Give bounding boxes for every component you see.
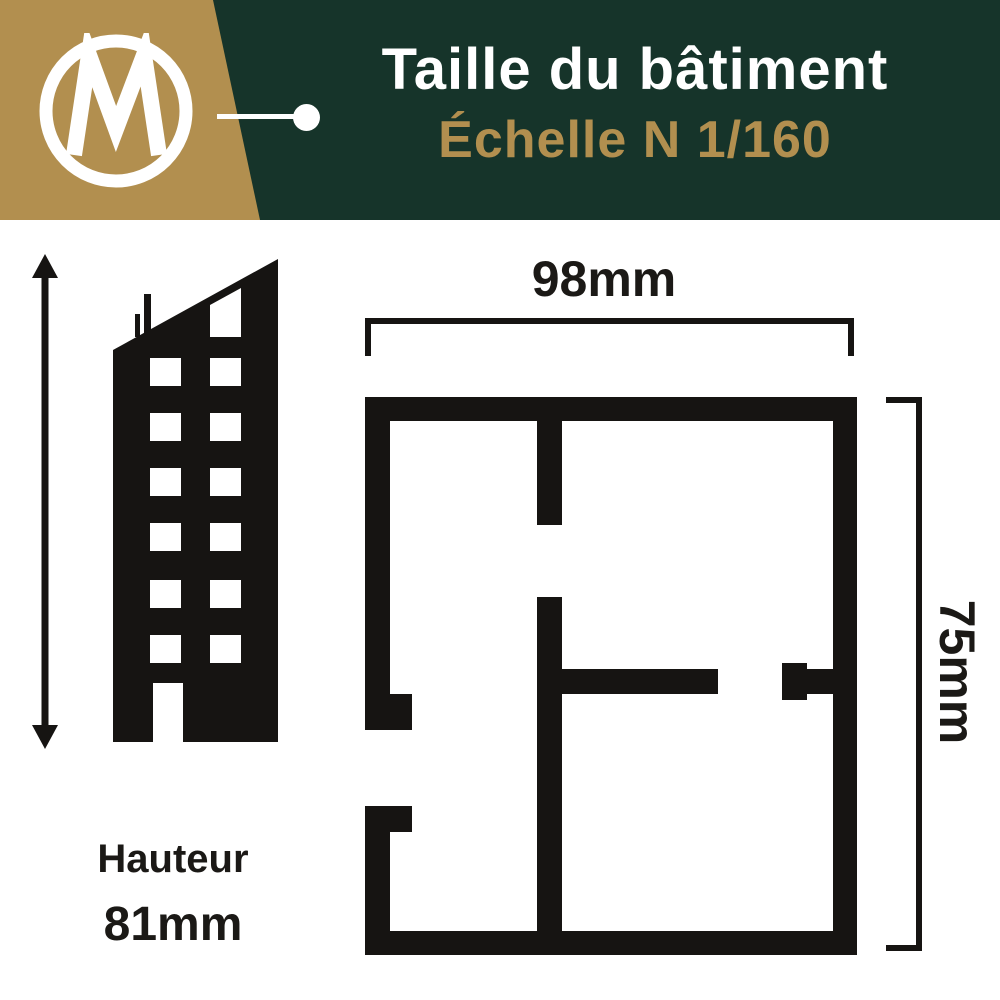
plan-wall-horizontal-left — [562, 669, 718, 694]
building-height-caption: Hauteur — [23, 837, 323, 882]
antenna-short — [135, 314, 140, 337]
plan-wall-left-lower — [365, 832, 390, 931]
building-door — [153, 683, 183, 742]
plan-wall-bottom — [365, 931, 857, 955]
floor-plan-icon — [365, 397, 857, 955]
building-height-value: 81mm — [23, 897, 323, 952]
plan-doorjamb-horizontal — [782, 663, 807, 700]
infographic-canvas: Taille du bâtiment Échelle N 1/160 — [0, 0, 1000, 1000]
height-arrow-icon — [32, 254, 58, 749]
plan-wall-right — [833, 397, 857, 955]
plan-wall-center-lower — [537, 597, 562, 931]
plan-doorjamb-left-upper — [365, 694, 412, 730]
plan-wall-center-upper — [537, 421, 562, 525]
plan-doorjamb-left-lower — [365, 806, 412, 832]
height-dimension-bracket — [886, 400, 919, 948]
plan-wall-top — [365, 397, 857, 421]
width-dimension-bracket — [368, 321, 851, 356]
antenna-tall — [144, 294, 151, 334]
plan-wall-left-upper — [365, 397, 390, 694]
plan-width-label: 98mm — [394, 250, 814, 308]
plan-wall-horizontal-right — [807, 669, 833, 694]
plan-height-label: 75mm — [928, 600, 986, 745]
building-silhouette-icon — [113, 259, 278, 742]
